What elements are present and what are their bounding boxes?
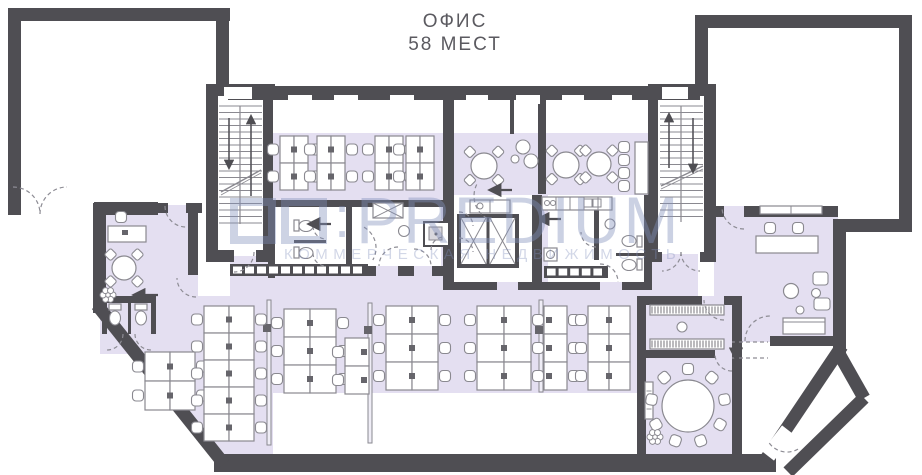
desk-cluster <box>544 306 580 390</box>
plan-title: ОФИС 58 МЕСТ <box>370 10 540 56</box>
plan-title-line1: ОФИС <box>370 10 540 33</box>
plan-title-line2: 58 МЕСТ <box>370 33 540 56</box>
plant-icon <box>647 430 663 445</box>
floor-plan-canvas <box>0 0 922 475</box>
desk-cluster <box>374 306 451 390</box>
desk-cluster <box>576 306 631 390</box>
kitchen-counter <box>542 197 612 210</box>
plant-icon <box>100 288 116 303</box>
